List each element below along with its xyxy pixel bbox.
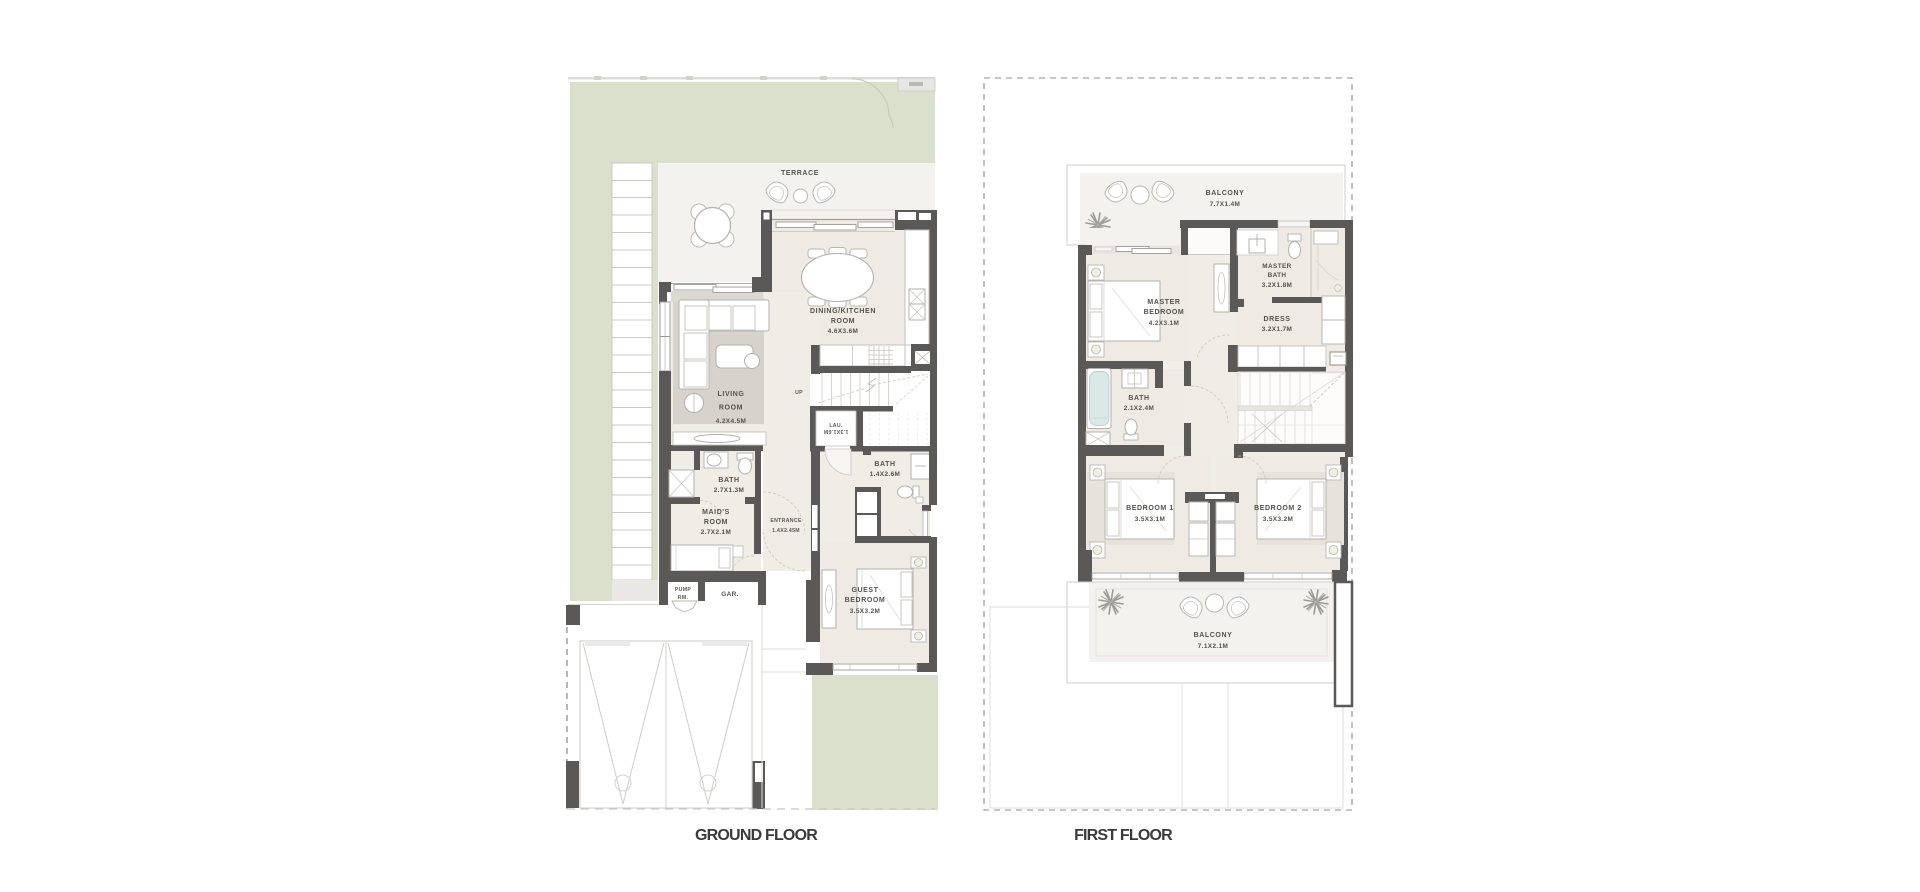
svg-text:3.5X3.1M: 3.5X3.1M — [1135, 516, 1166, 523]
svg-text:1.4X2.6M: 1.4X2.6M — [870, 471, 901, 478]
svg-text:PUMP: PUMP — [675, 587, 691, 593]
svg-text:LIVING: LIVING — [718, 391, 745, 398]
svg-text:BEDROOM 2: BEDROOM 2 — [1254, 505, 1302, 512]
svg-text:3.5X3.2M: 3.5X3.2M — [1263, 516, 1294, 523]
svg-text:7.7X1.4M: 7.7X1.4M — [1210, 201, 1241, 208]
svg-text:BEDROOM: BEDROOM — [1144, 309, 1185, 316]
svg-text:2.1X2.4M: 2.1X2.4M — [1124, 405, 1155, 412]
svg-text:BEDROOM: BEDROOM — [845, 597, 886, 604]
svg-text:1.3X1.6M: 1.3X1.6M — [824, 428, 849, 434]
svg-text:RM.: RM. — [678, 595, 689, 601]
svg-text:7.1X2.1M: 7.1X2.1M — [1198, 643, 1229, 650]
svg-text:4.2X3.1M: 4.2X3.1M — [1149, 320, 1180, 327]
svg-text:BALCONY: BALCONY — [1194, 632, 1233, 639]
svg-text:GAR.: GAR. — [721, 591, 739, 598]
svg-text:3.5X3.2M: 3.5X3.2M — [850, 608, 881, 615]
svg-text:MASTER: MASTER — [1147, 299, 1180, 306]
svg-text:GROUND FLOOR: GROUND FLOOR — [695, 827, 818, 844]
svg-text:BATH: BATH — [718, 477, 739, 484]
svg-text:DRESS: DRESS — [1263, 316, 1290, 323]
svg-text:MASTER: MASTER — [1262, 263, 1291, 270]
svg-text:BEDROOM 1: BEDROOM 1 — [1126, 505, 1174, 512]
svg-text:ROOM: ROOM — [831, 318, 855, 325]
svg-text:2.7X2.1M: 2.7X2.1M — [701, 529, 732, 536]
svg-text:4.2X4.5M: 4.2X4.5M — [716, 418, 747, 425]
svg-text:FIRST FLOOR: FIRST FLOOR — [1074, 827, 1173, 844]
svg-text:3.2X1.8M: 3.2X1.8M — [1262, 282, 1293, 289]
svg-text:BATH: BATH — [874, 461, 895, 468]
svg-text:ENTRANCE: ENTRANCE — [770, 518, 801, 524]
svg-text:GUEST: GUEST — [851, 587, 878, 594]
svg-text:ROOM: ROOM — [704, 519, 728, 526]
svg-text:4.6X3.6M: 4.6X3.6M — [828, 328, 859, 335]
svg-text:DINING/KITCHEN: DINING/KITCHEN — [810, 308, 876, 315]
svg-text:UP: UP — [795, 390, 803, 396]
svg-text:3.2X1.7M: 3.2X1.7M — [1262, 326, 1293, 333]
svg-text:1.4X2.45M: 1.4X2.45M — [772, 528, 800, 534]
svg-text:MAID'S: MAID'S — [702, 509, 730, 516]
svg-text:BATH: BATH — [1128, 395, 1149, 402]
svg-text:TERRACE: TERRACE — [781, 170, 819, 177]
svg-text:BATH: BATH — [1268, 272, 1287, 279]
svg-text:2.7X1.3M: 2.7X1.3M — [714, 487, 745, 494]
svg-text:ROOM: ROOM — [719, 405, 743, 412]
svg-text:BALCONY: BALCONY — [1206, 190, 1245, 197]
